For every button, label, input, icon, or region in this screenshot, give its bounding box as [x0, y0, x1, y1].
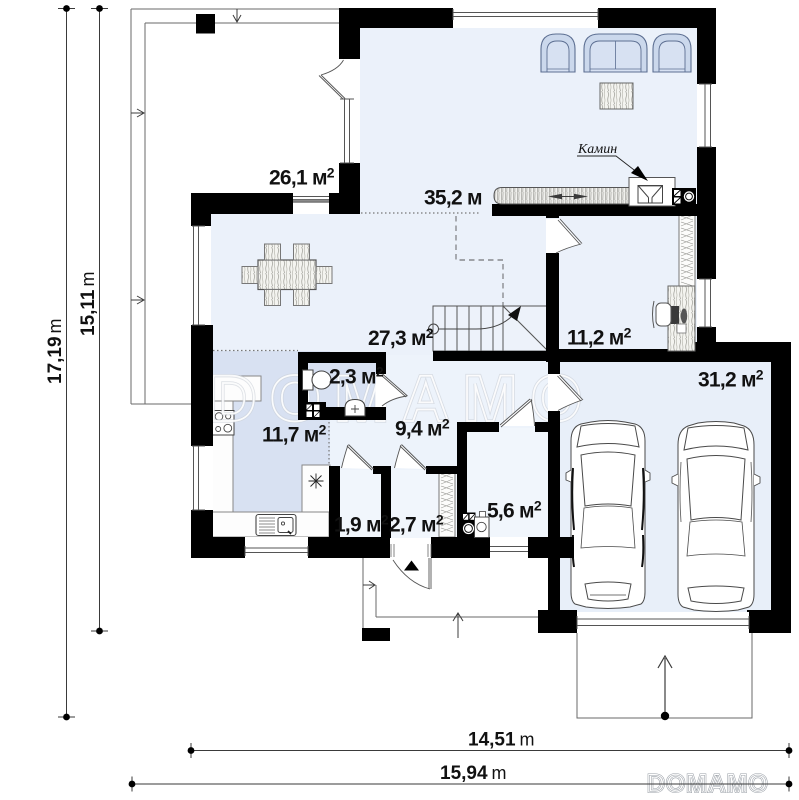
svg-text:11,7 м2: 11,7 м2	[262, 422, 327, 447]
svg-text:5,6 м2: 5,6 м2	[487, 498, 542, 523]
svg-text:26,1 м2: 26,1 м2	[269, 165, 335, 190]
svg-text:11,2 м2: 11,2 м2	[567, 325, 632, 350]
svg-text:14,51m: 14,51m	[468, 730, 535, 751]
svg-text:2,7 м2: 2,7 м2	[389, 512, 444, 537]
svg-text:17,19m: 17,19m	[45, 318, 66, 384]
svg-text:15,11m: 15,11m	[78, 272, 99, 337]
svg-text:1,9 м2: 1,9 м2	[334, 512, 389, 537]
svg-text:2,3 м2: 2,3 м2	[329, 364, 384, 389]
svg-text:15,94m: 15,94m	[440, 763, 507, 784]
svg-text:Камин: Камин	[577, 142, 617, 157]
svg-text:9,4 м2: 9,4 м2	[395, 416, 450, 441]
svg-text:35,2 м: 35,2 м	[424, 187, 482, 210]
svg-text:31,2 м2: 31,2 м2	[698, 367, 764, 392]
svg-text:27,3 м2: 27,3 м2	[368, 325, 434, 350]
